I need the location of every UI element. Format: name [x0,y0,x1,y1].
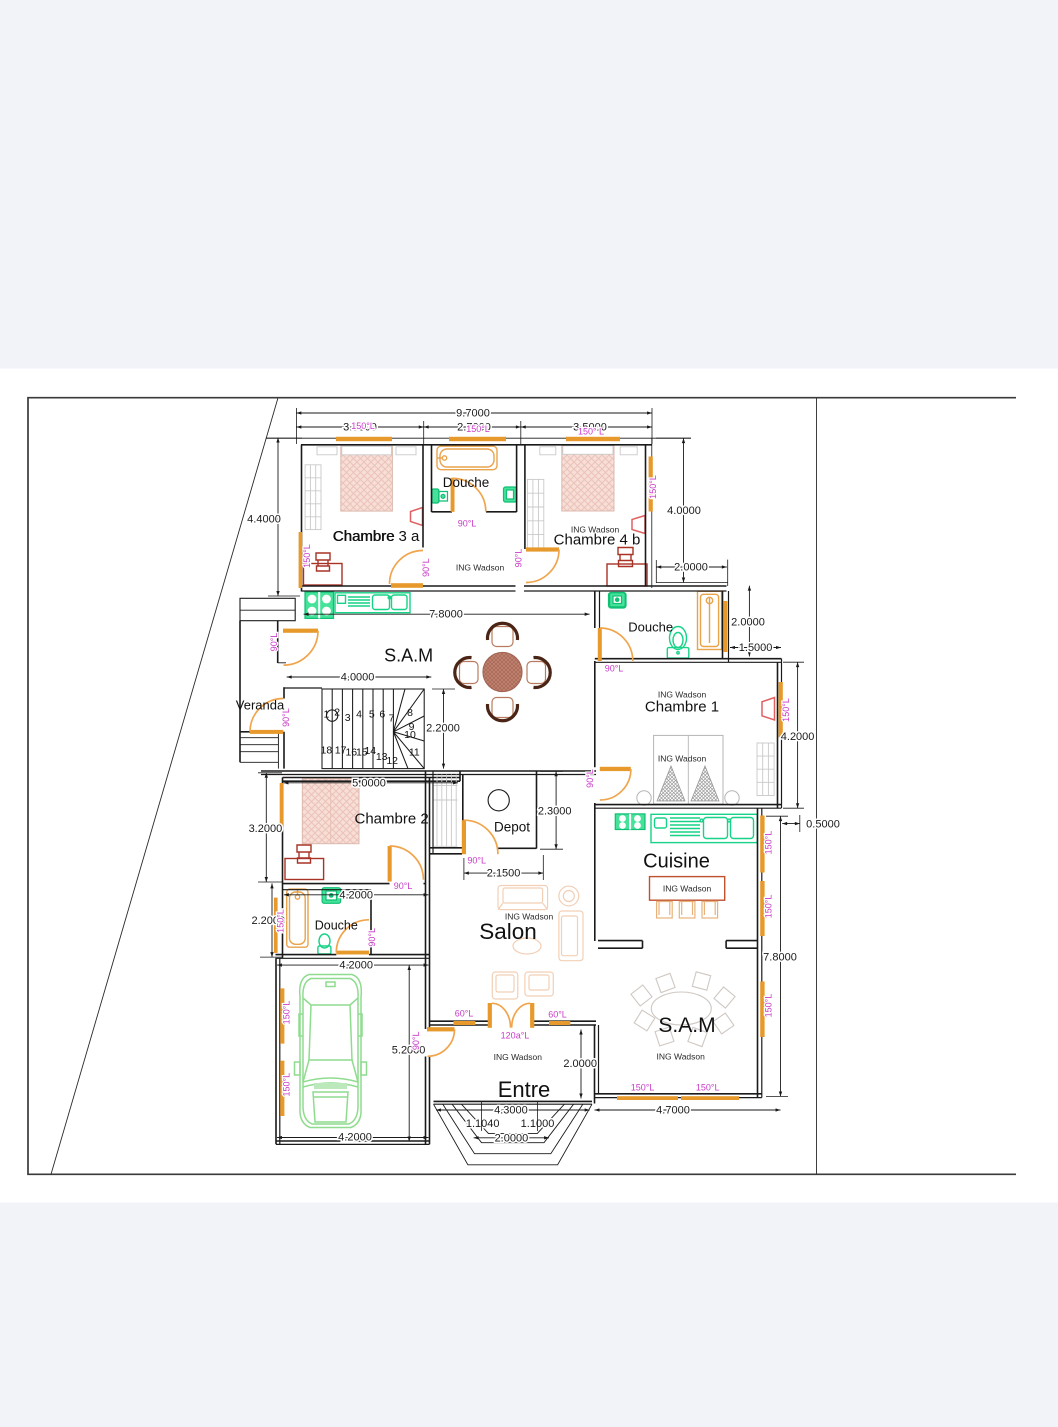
svg-text:1: 1 [323,708,329,720]
svg-text:4.0000: 4.0000 [341,672,375,684]
svg-text:Depot: Depot [494,820,530,835]
svg-text:Douche: Douche [628,620,673,635]
svg-text:Entre: Entre [498,1077,551,1102]
svg-text:2.3000: 2.3000 [538,806,572,818]
svg-text:90°L: 90°L [269,633,279,652]
svg-text:4.2000: 4.2000 [338,1132,372,1144]
svg-text:90°L: 90°L [421,558,431,577]
svg-text:4.7000: 4.7000 [656,1105,690,1117]
svg-text:2.0000: 2.0000 [731,617,765,629]
svg-text:90°L: 90°L [467,856,486,866]
svg-text:150°L: 150°L [696,1082,720,1092]
svg-text:2.0000: 2.0000 [563,1058,597,1070]
svg-text:7.8000: 7.8000 [429,609,463,621]
svg-text:2.0000: 2.0000 [674,562,708,574]
svg-text:150°L: 150°L [648,475,658,499]
svg-text:8: 8 [407,707,413,719]
svg-text:13: 13 [376,751,388,763]
svg-text:3.2000: 3.2000 [249,823,283,835]
svg-text:Douche: Douche [443,475,490,490]
svg-text:9.7000: 9.7000 [456,408,490,420]
svg-text:150° L: 150° L [578,427,604,437]
svg-text:150°L: 150°L [466,424,490,434]
svg-text:150°L: 150°L [302,544,312,568]
svg-text:150°L: 150°L [781,698,791,722]
svg-text:11: 11 [409,747,420,759]
svg-text:5: 5 [369,708,375,720]
svg-text:60°L: 60°L [548,1010,567,1020]
svg-text:150°L: 150°L [282,1001,292,1025]
svg-text:150°L: 150°L [282,1073,292,1097]
svg-text:Douche: Douche [315,919,358,933]
svg-text:S.A.M: S.A.M [384,646,433,666]
svg-text:90°L: 90°L [281,708,291,727]
svg-text:150°L: 150°L [276,909,286,933]
svg-text:10: 10 [404,729,416,741]
svg-text:Chambre 4 b: Chambre 4 b [554,532,641,549]
svg-text:90°L: 90°L [585,769,595,788]
svg-text:90°L: 90°L [605,664,624,674]
svg-text:Chambre 2: Chambre 2 [354,811,428,828]
svg-text:90°L: 90°L [513,549,523,568]
svg-text:4.2000: 4.2000 [781,731,815,743]
svg-text:1.1040: 1.1040 [466,1118,500,1130]
svg-text:150°L: 150°L [351,421,375,431]
svg-text:4.0000: 4.0000 [667,505,701,517]
svg-text:90°L: 90°L [367,928,377,947]
svg-text:12: 12 [386,755,398,767]
svg-text:120a°L: 120a°L [501,1031,530,1041]
svg-text:0.5000: 0.5000 [806,819,840,831]
svg-text:17: 17 [335,745,347,757]
svg-text:2.0000: 2.0000 [495,1132,529,1144]
svg-text:3: 3 [345,712,351,724]
svg-text:2.2000: 2.2000 [426,723,460,735]
svg-text:90°L: 90°L [411,1031,421,1050]
svg-text:1.5000: 1.5000 [739,642,773,654]
svg-text:ING Wadson: ING Wadson [658,754,707,764]
svg-text:S.A.M: S.A.M [658,1014,715,1037]
svg-text:4.4000: 4.4000 [247,514,281,526]
svg-text:ING Wadson: ING Wadson [657,1052,706,1062]
svg-text:4.2000: 4.2000 [339,889,373,901]
svg-text:ING Wadson: ING Wadson [494,1052,543,1062]
svg-text:2.1500: 2.1500 [487,868,521,880]
svg-text:6: 6 [379,708,385,720]
svg-text:4: 4 [356,708,362,720]
svg-text:15: 15 [356,747,368,759]
svg-text:7.8000: 7.8000 [763,951,797,963]
svg-text:ING Wadson: ING Wadson [456,563,505,573]
svg-text:60°L: 60°L [455,1009,474,1019]
svg-text:5.0000: 5.0000 [352,777,386,789]
svg-text:150°L: 150°L [764,831,774,855]
svg-text:4.2000: 4.2000 [339,960,373,972]
svg-text:150°L: 150°L [631,1082,655,1092]
svg-text:ING Wadson: ING Wadson [663,884,712,894]
svg-text:150°L: 150°L [764,994,774,1018]
svg-text:90°L: 90°L [394,881,413,891]
svg-text:90°L: 90°L [458,519,477,529]
svg-text:Veranda: Veranda [236,698,285,713]
svg-text:4.3000: 4.3000 [494,1105,528,1117]
svg-text:150°L: 150°L [764,895,774,919]
svg-text:16: 16 [345,747,357,759]
svg-text:Cuisine: Cuisine [643,851,710,873]
svg-text:18: 18 [321,745,333,757]
svg-text:Chambre 3 a: Chambre 3 a [333,528,420,545]
svg-text:7: 7 [389,713,395,725]
svg-text:Chambre 1: Chambre 1 [645,699,719,716]
svg-text:2: 2 [334,706,340,718]
svg-text:Salon: Salon [479,919,537,944]
